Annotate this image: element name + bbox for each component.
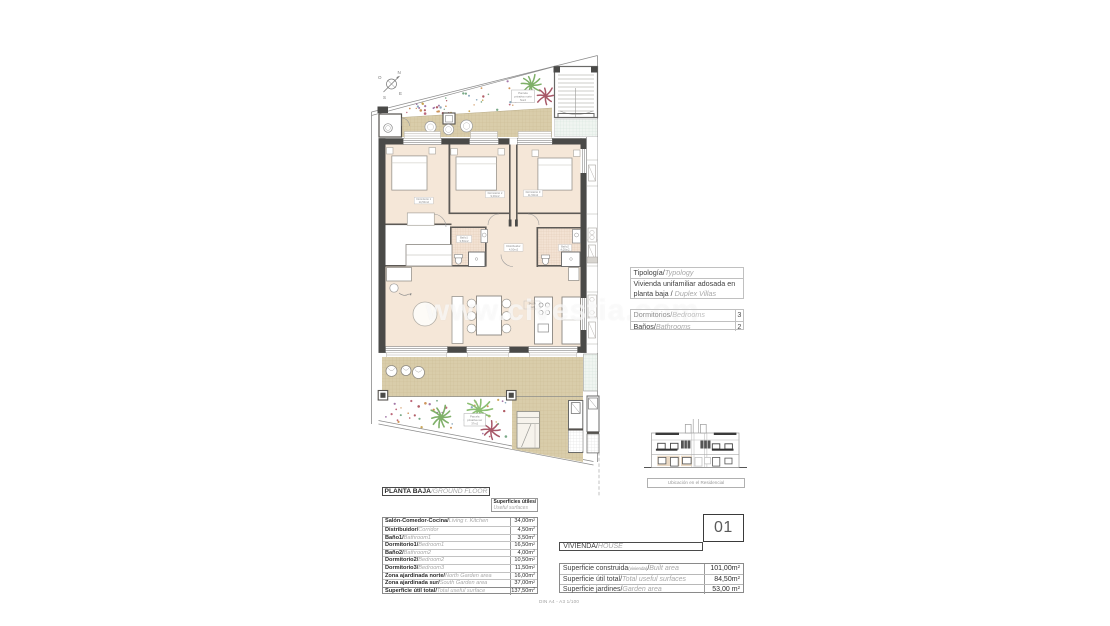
- svg-text:Nord: Nord: [520, 98, 527, 102]
- svg-text:4,50m2: 4,50m2: [509, 247, 519, 251]
- svg-text:14,50m2: 14,50m2: [419, 200, 430, 204]
- svg-text:4,00m2: 4,00m2: [561, 248, 570, 252]
- svg-text:E: E: [399, 91, 402, 96]
- svg-text:9,00m2: 9,00m2: [491, 194, 500, 198]
- svg-text:11,50m2: 11,50m2: [528, 193, 539, 197]
- svg-text:3,50m2: 3,50m2: [460, 239, 469, 243]
- svg-text:S: S: [383, 95, 386, 100]
- svg-text:37m2: 37m2: [471, 421, 478, 425]
- svg-text:O: O: [378, 75, 382, 80]
- svg-text:N: N: [398, 70, 401, 75]
